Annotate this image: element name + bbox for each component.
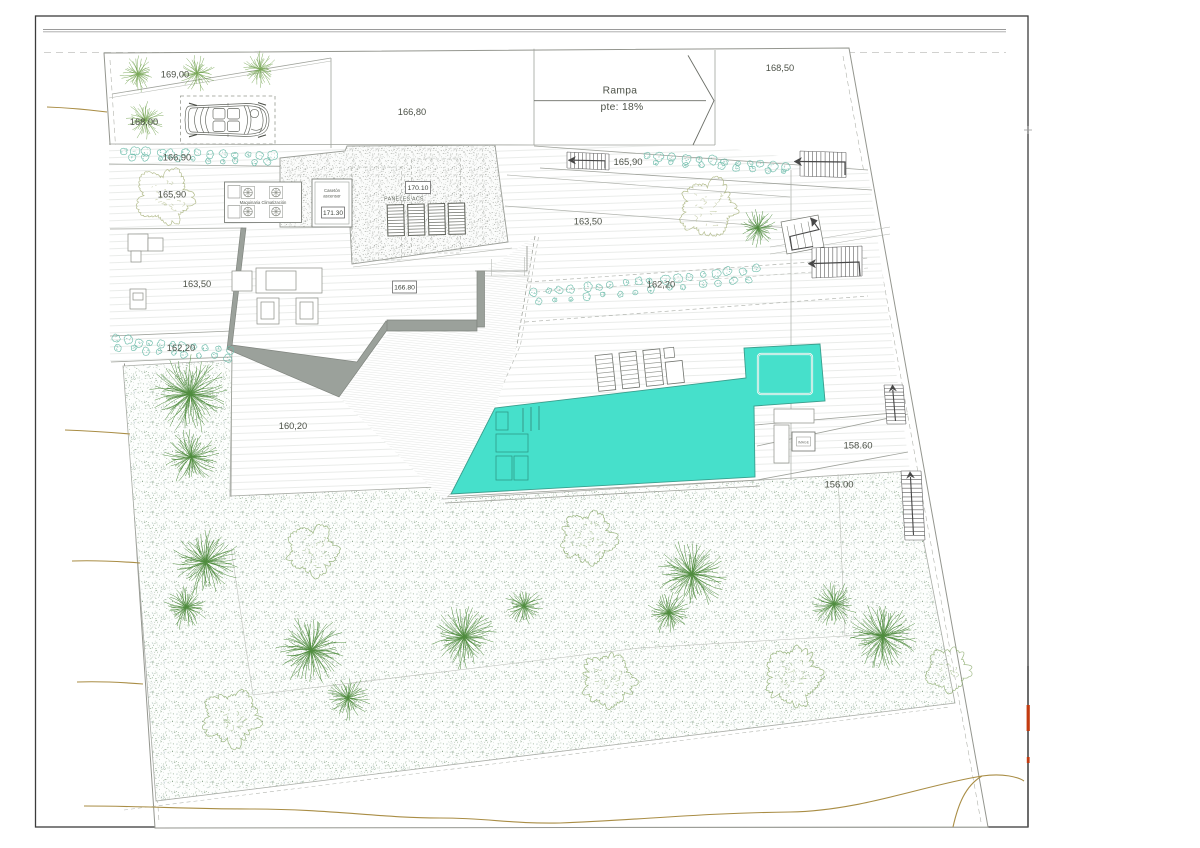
svg-text:170.10: 170.10 — [408, 185, 429, 192]
svg-text:162,20: 162,20 — [167, 343, 195, 353]
svg-text:165,90: 165,90 — [613, 157, 642, 168]
svg-text:171.30: 171.30 — [323, 210, 343, 217]
svg-text:ascensor: ascensor — [323, 194, 341, 199]
svg-text:Maquinaria Climatización: Maquinaria Climatización — [240, 200, 287, 205]
svg-text:160,20: 160,20 — [279, 421, 307, 431]
svg-text:168,50: 168,50 — [766, 63, 794, 73]
svg-text:pte: 18%: pte: 18% — [600, 102, 643, 113]
svg-text:158.60: 158.60 — [843, 441, 872, 452]
svg-text:166,90: 166,90 — [163, 153, 191, 163]
svg-text:PANELES ACS: PANELES ACS — [384, 197, 424, 203]
svg-text:156.00: 156.00 — [824, 480, 853, 491]
svg-text:162,20: 162,20 — [647, 280, 675, 290]
svg-text:169,00: 169,00 — [161, 70, 189, 80]
svg-text:Rampa: Rampa — [603, 86, 638, 97]
svg-text:166.80: 166.80 — [394, 284, 415, 291]
svg-text:166,80: 166,80 — [398, 107, 426, 117]
svg-text:Casetón: Casetón — [324, 188, 341, 193]
svg-text:IMAGE: IMAGE — [798, 441, 810, 445]
svg-text:165,90: 165,90 — [158, 190, 186, 200]
svg-text:163,50: 163,50 — [183, 279, 211, 289]
svg-text:168,00: 168,00 — [130, 117, 158, 127]
svg-text:163,50: 163,50 — [574, 217, 602, 227]
